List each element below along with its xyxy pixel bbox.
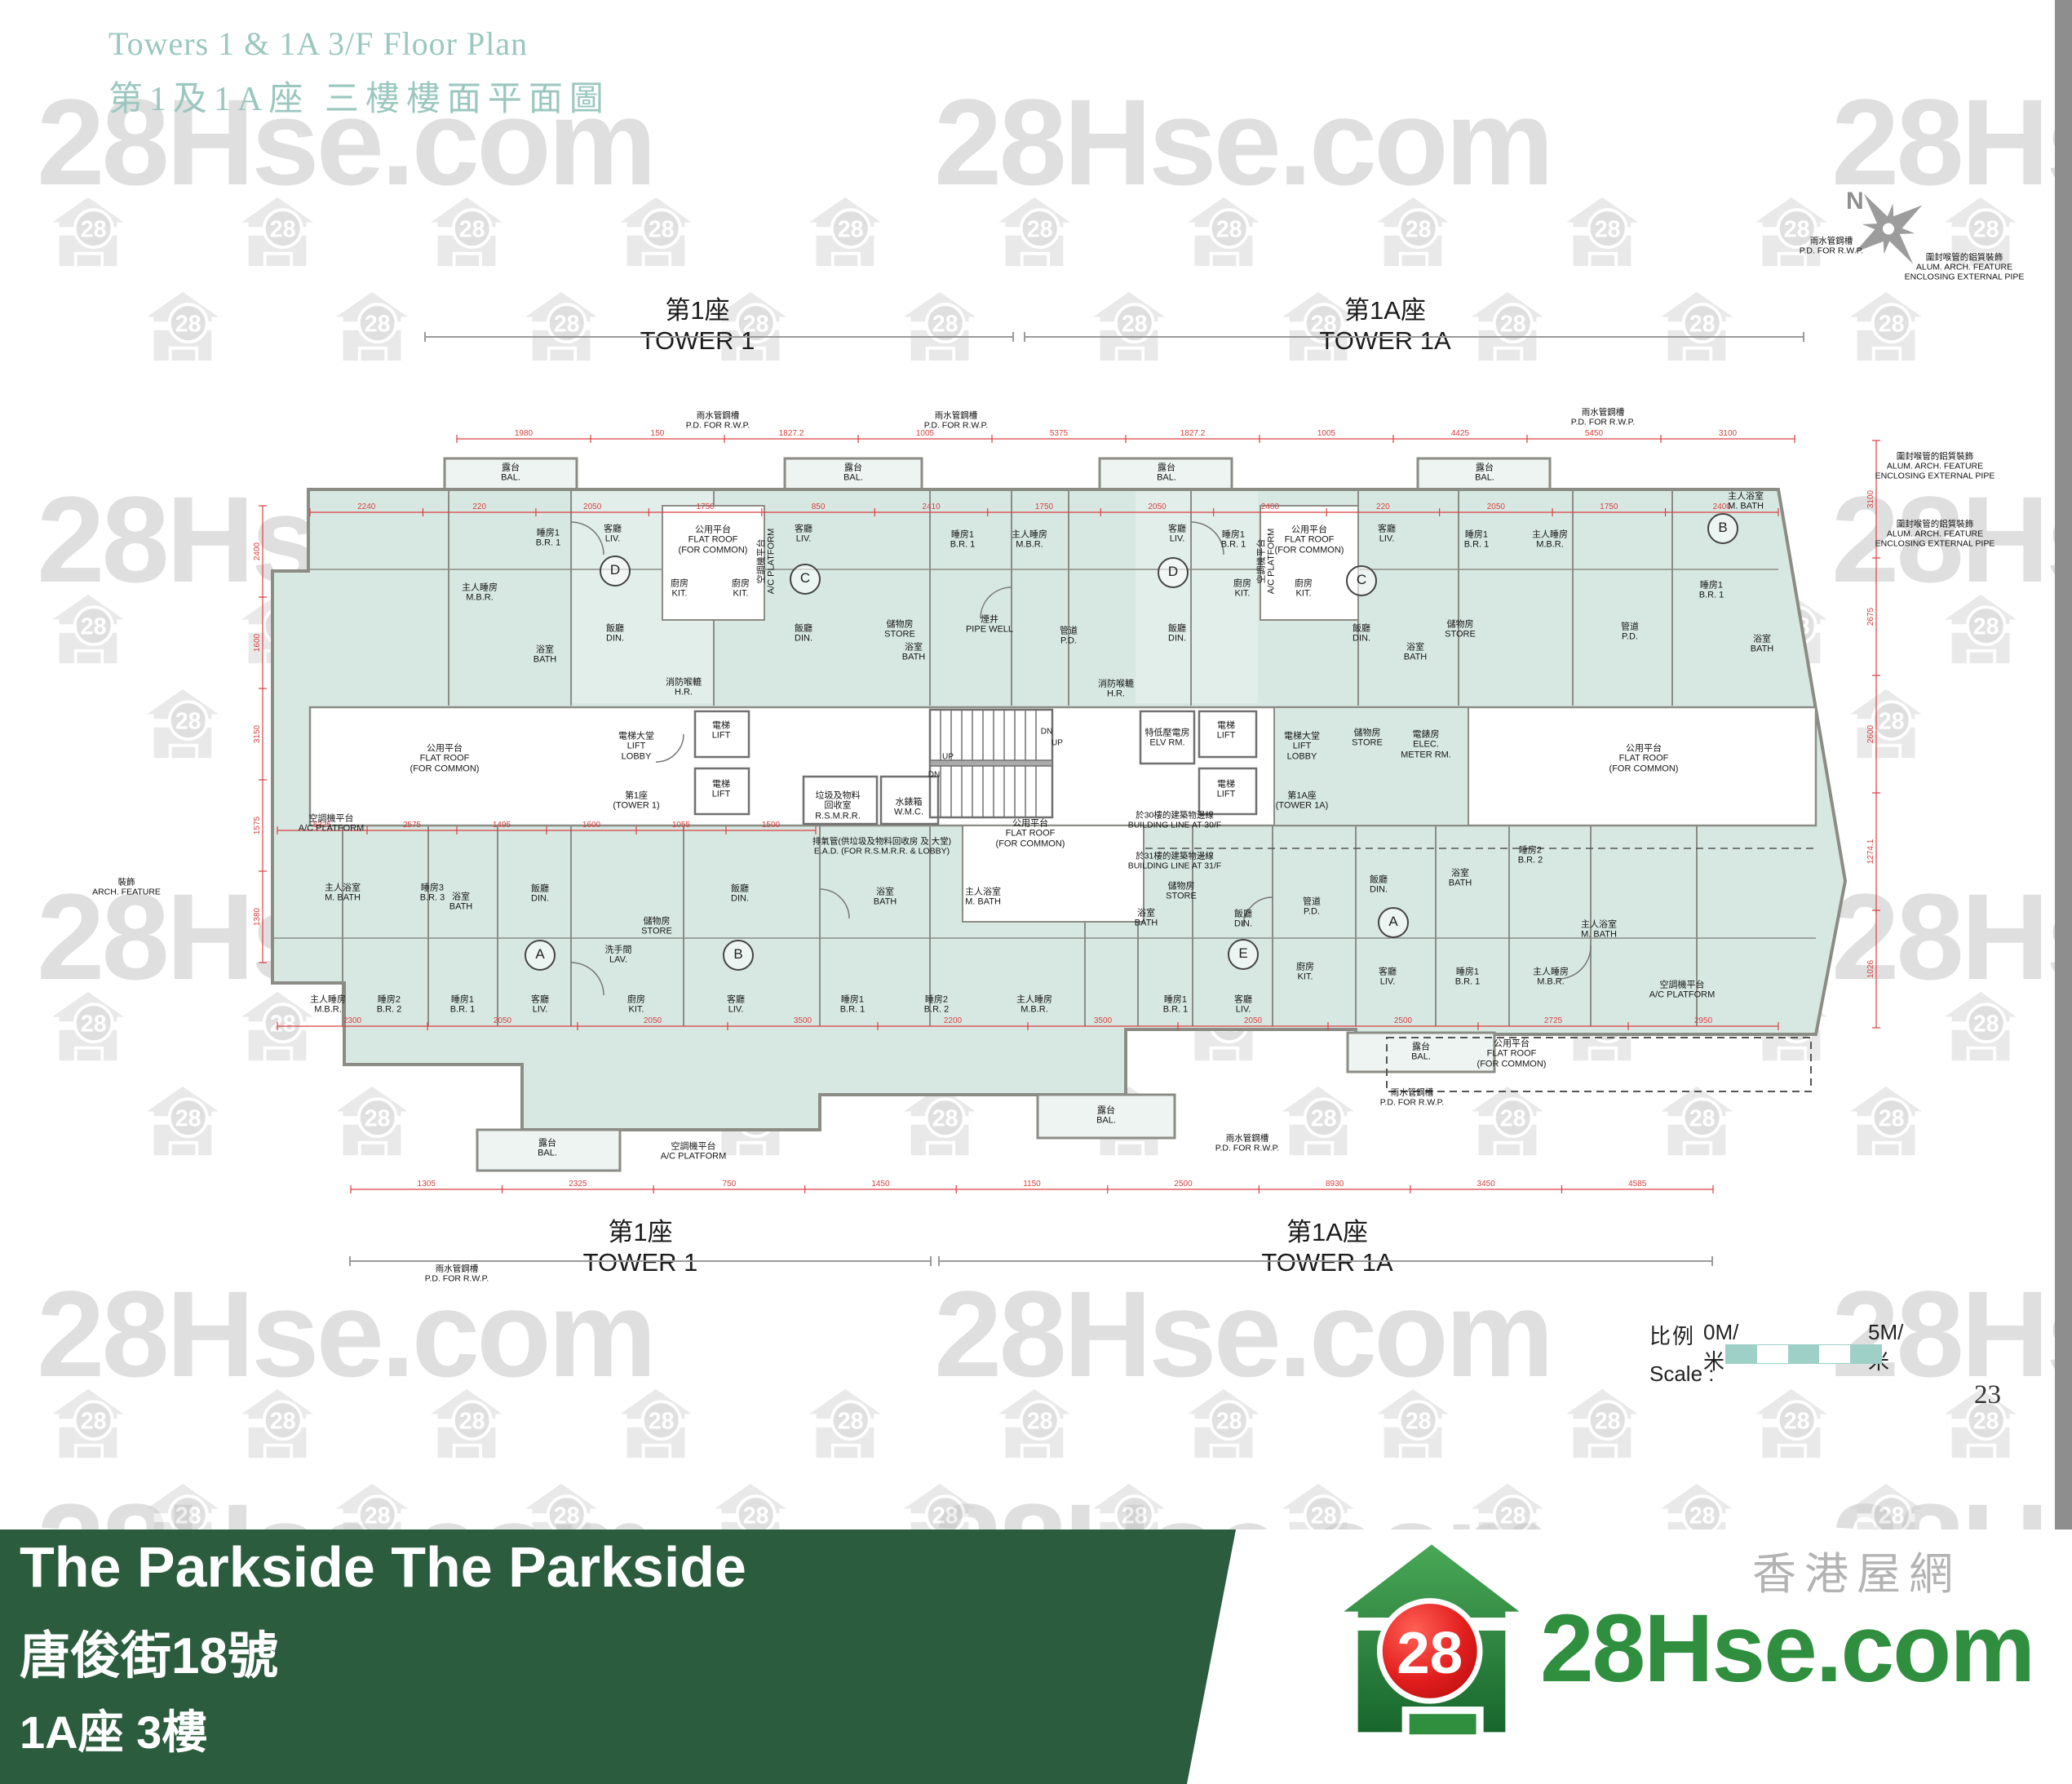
svg-text:28: 28 bbox=[1397, 1620, 1463, 1686]
svg-text:1575: 1575 bbox=[253, 816, 262, 834]
page-title-en: Towers 1 & 1A 3/F Floor Plan bbox=[108, 24, 610, 63]
svg-text:2400: 2400 bbox=[1261, 502, 1280, 511]
svg-text:850: 850 bbox=[812, 502, 826, 511]
scale-indicator: 比例 Scale : 0M/米 5M/米 bbox=[1649, 1320, 1715, 1387]
svg-text:1495: 1495 bbox=[493, 821, 511, 830]
svg-text:3150: 3150 bbox=[253, 724, 262, 743]
tower1-bottom-line bbox=[349, 1260, 932, 1262]
svg-text:6325: 6325 bbox=[313, 821, 332, 830]
svg-text:1827.2: 1827.2 bbox=[779, 429, 804, 438]
svg-text:1450: 1450 bbox=[871, 1180, 890, 1189]
svg-text:750: 750 bbox=[723, 1180, 737, 1189]
svg-text:1055: 1055 bbox=[672, 821, 691, 830]
svg-text:3450: 3450 bbox=[1477, 1180, 1496, 1189]
svg-text:2410: 2410 bbox=[922, 502, 941, 511]
svg-text:1150: 1150 bbox=[1023, 1180, 1041, 1189]
north-label: N bbox=[1846, 188, 1864, 215]
svg-text:4425: 4425 bbox=[1451, 429, 1470, 438]
svg-text:2575: 2575 bbox=[403, 821, 422, 830]
svg-text:3500: 3500 bbox=[1094, 1016, 1113, 1025]
page-title: Towers 1 & 1A 3/F Floor Plan 第1及1A座 三樓樓面… bbox=[108, 24, 610, 121]
svg-text:1005: 1005 bbox=[916, 429, 935, 438]
svg-text:2500: 2500 bbox=[1174, 1180, 1193, 1189]
svg-text:2050: 2050 bbox=[644, 1016, 662, 1025]
svg-text:2950: 2950 bbox=[1694, 1016, 1713, 1025]
svg-text:2325: 2325 bbox=[569, 1180, 587, 1189]
tower1-top-label: 第1座 TOWER 1 bbox=[640, 290, 755, 356]
svg-text:4585: 4585 bbox=[1628, 1180, 1647, 1189]
svg-text:5375: 5375 bbox=[1050, 429, 1069, 438]
svg-text:3100: 3100 bbox=[1719, 429, 1738, 438]
svg-text:1750: 1750 bbox=[696, 502, 715, 511]
svg-text:1380: 1380 bbox=[253, 907, 262, 926]
svg-text:220: 220 bbox=[1376, 502, 1390, 511]
page-number: 23 bbox=[1974, 1380, 2001, 1410]
svg-text:2675: 2675 bbox=[1866, 607, 1875, 626]
svg-text:1980: 1980 bbox=[515, 429, 533, 438]
svg-text:2400: 2400 bbox=[253, 542, 262, 560]
svg-text:2200: 2200 bbox=[944, 1016, 963, 1025]
svg-text:2725: 2725 bbox=[1544, 1016, 1563, 1025]
svg-text:1274.1: 1274.1 bbox=[1866, 839, 1875, 864]
svg-text:2300: 2300 bbox=[343, 1016, 362, 1025]
page-title-zh: 第1及1A座 三樓樓面平面圖 bbox=[108, 71, 610, 121]
tower1-bottom-label: 第1座 TOWER 1 bbox=[583, 1211, 698, 1277]
tower1-top-line bbox=[424, 336, 1014, 338]
estate-name: The Parkside The Parkside bbox=[20, 1534, 746, 1600]
scale-bar bbox=[1725, 1344, 1882, 1364]
tower1a-top-label: 第1A座 TOWER 1A bbox=[1319, 290, 1450, 356]
svg-text:1827.2: 1827.2 bbox=[1180, 429, 1206, 438]
svg-text:1026: 1026 bbox=[1866, 959, 1875, 978]
svg-text:1750: 1750 bbox=[1600, 502, 1618, 511]
svg-text:2050: 2050 bbox=[494, 1016, 512, 1025]
svg-text:1005: 1005 bbox=[1317, 429, 1336, 438]
svg-text:8930: 8930 bbox=[1326, 1180, 1344, 1189]
svg-text:1750: 1750 bbox=[1035, 502, 1054, 511]
tower1a-bottom-label: 第1A座 TOWER 1A bbox=[1261, 1211, 1392, 1277]
svg-text:2050: 2050 bbox=[1487, 502, 1506, 511]
svg-text:2050: 2050 bbox=[1244, 1016, 1263, 1025]
tower1a-bottom-line bbox=[938, 1260, 1713, 1262]
logo-house-icon: 28 bbox=[1330, 1536, 1534, 1740]
svg-text:2400: 2400 bbox=[1713, 502, 1732, 511]
svg-text:2500: 2500 bbox=[1394, 1016, 1413, 1025]
logo-28hse: 28 28Hse.com 香港屋網 bbox=[1305, 1529, 2072, 1784]
estate-unit: 1A座 3樓 bbox=[20, 1696, 207, 1762]
svg-text:3500: 3500 bbox=[794, 1016, 812, 1025]
logo-tagline: 香港屋網 bbox=[1752, 1538, 1961, 1602]
svg-text:3100: 3100 bbox=[1866, 489, 1875, 508]
estate-address: 唐俊街18號 bbox=[20, 1614, 278, 1688]
svg-text:2050: 2050 bbox=[1148, 502, 1167, 511]
svg-text:2050: 2050 bbox=[583, 502, 602, 511]
svg-text:1600: 1600 bbox=[253, 633, 262, 652]
svg-text:2240: 2240 bbox=[357, 502, 376, 511]
svg-text:2600: 2600 bbox=[1866, 724, 1875, 743]
north-arrow: N bbox=[1840, 186, 1937, 276]
svg-text:220: 220 bbox=[472, 502, 486, 511]
svg-text:1305: 1305 bbox=[418, 1180, 436, 1189]
svg-text:1500: 1500 bbox=[762, 821, 781, 830]
logo-wordmark: 28Hse.com bbox=[1540, 1593, 2034, 1704]
svg-text:1600: 1600 bbox=[582, 821, 601, 830]
svg-text:150: 150 bbox=[651, 429, 665, 438]
floorplan-drawing: 19801501827.2100553751827.21005442554503… bbox=[0, 0, 2072, 1529]
svg-text:5450: 5450 bbox=[1585, 429, 1604, 438]
page-edge-shadow bbox=[2055, 0, 2072, 1529]
tower1a-top-line bbox=[1024, 336, 1804, 338]
floorplan-page: 28Hse.com28Hse.com28Hse.com28Hse.com28Hs… bbox=[0, 0, 2072, 1784]
